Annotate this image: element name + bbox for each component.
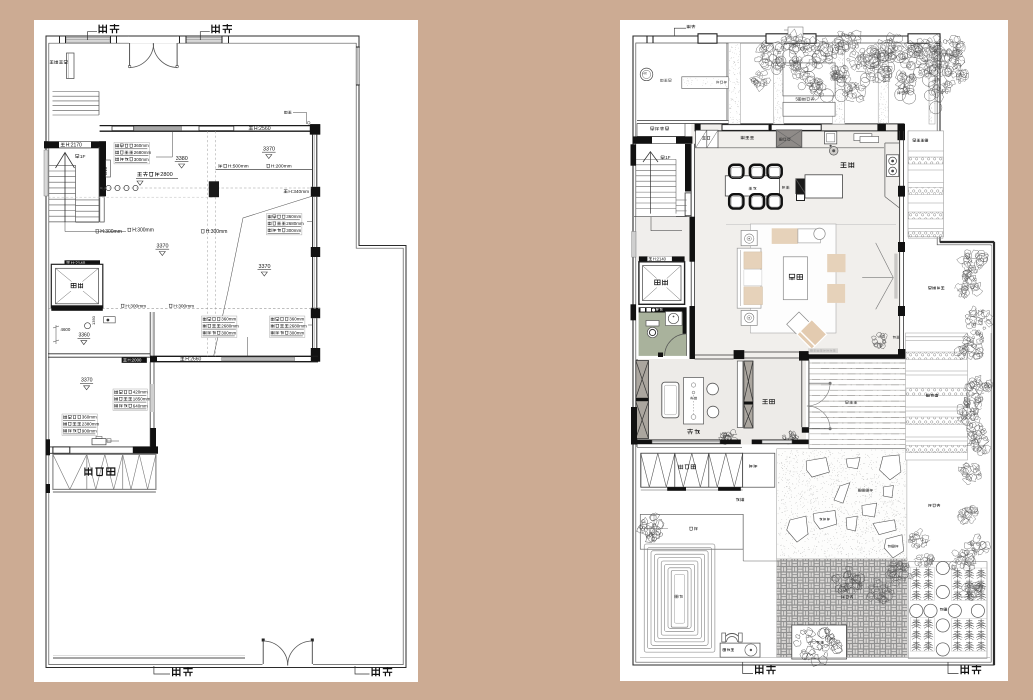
svg-text:1F: 1F bbox=[665, 155, 671, 160]
svg-text:2680mm: 2680mm bbox=[134, 150, 152, 155]
svg-text:3370: 3370 bbox=[263, 146, 275, 152]
svg-text:3370: 3370 bbox=[81, 378, 93, 384]
svg-text:2800: 2800 bbox=[160, 172, 172, 178]
svg-text:H:300mm: H:300mm bbox=[132, 228, 154, 234]
svg-text:300mm: 300mm bbox=[286, 228, 301, 233]
svg-text:H:340mm: H:340mm bbox=[288, 189, 309, 195]
svg-text:360mm: 360mm bbox=[82, 415, 97, 420]
svg-text:360mm: 360mm bbox=[221, 317, 236, 322]
svg-text:2380mm: 2380mm bbox=[82, 422, 100, 427]
svg-text:H:2560: H:2560 bbox=[254, 126, 271, 132]
svg-text:H:2000: H:2000 bbox=[128, 358, 142, 363]
svg-text:300mm: 300mm bbox=[134, 157, 149, 162]
svg-text:3370: 3370 bbox=[259, 264, 271, 270]
svg-text:1F: 1F bbox=[80, 154, 86, 160]
svg-text:1850mm: 1850mm bbox=[133, 397, 151, 402]
svg-text:4600: 4600 bbox=[61, 327, 71, 332]
svg-text:3380: 3380 bbox=[176, 156, 188, 162]
svg-text:2680mm: 2680mm bbox=[221, 324, 239, 329]
svg-text:300mm: 300mm bbox=[221, 330, 236, 335]
svg-text:300mm: 300mm bbox=[289, 330, 304, 335]
svg-text:H:2170: H:2170 bbox=[66, 142, 82, 148]
svg-text:3370: 3370 bbox=[157, 243, 169, 249]
svg-text:H:2660: H:2660 bbox=[185, 357, 201, 363]
svg-text:H:500mm: H:500mm bbox=[228, 164, 249, 170]
svg-text:640mm: 640mm bbox=[133, 403, 148, 408]
svg-text:H:300mm: H:300mm bbox=[125, 303, 146, 309]
svg-text:360mm: 360mm bbox=[134, 143, 149, 148]
svg-text:420mm: 420mm bbox=[133, 390, 148, 395]
svg-text:360mm: 360mm bbox=[289, 317, 304, 322]
svg-text:D15: D15 bbox=[103, 166, 108, 175]
svg-text:360mm: 360mm bbox=[286, 214, 301, 219]
svg-text:2680mm: 2680mm bbox=[289, 324, 307, 329]
svg-text:H:200mm: H:200mm bbox=[271, 164, 292, 170]
svg-text:H:300mm: H:300mm bbox=[173, 303, 194, 309]
svg-text:900mm: 900mm bbox=[82, 428, 97, 433]
svg-text:2680mm: 2680mm bbox=[286, 221, 304, 226]
svg-text:H:300mm: H:300mm bbox=[100, 229, 122, 235]
svg-text:H:300mm: H:300mm bbox=[206, 229, 228, 235]
svg-text:1350: 1350 bbox=[91, 315, 96, 325]
svg-text:3360: 3360 bbox=[79, 333, 90, 339]
svg-text:H:2140: H:2140 bbox=[653, 256, 667, 261]
